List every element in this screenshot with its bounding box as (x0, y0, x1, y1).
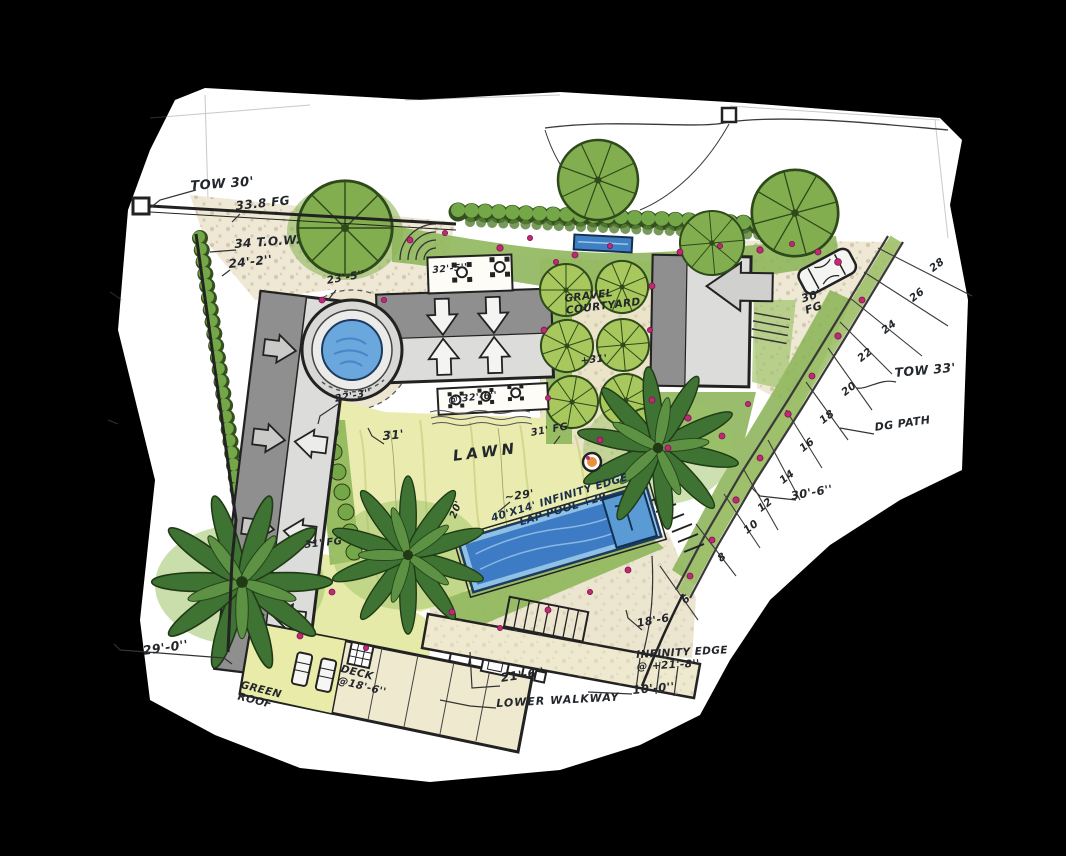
main-residence (377, 289, 554, 383)
water-trough (574, 234, 633, 252)
site-plan-canvas: TOW 30' 33.8 FG 34 T.O.W. 24'-2'' 23'-5'… (0, 0, 1066, 856)
gate-post (722, 108, 736, 122)
label-infinity-edge: INFINITY EDGE @ +21'-8'' (636, 645, 729, 673)
spa-circle (302, 300, 402, 400)
deck-table (347, 642, 373, 668)
round-tree (298, 181, 392, 275)
fire-bowl (583, 453, 601, 471)
label-dim-31: 31' (382, 428, 405, 443)
